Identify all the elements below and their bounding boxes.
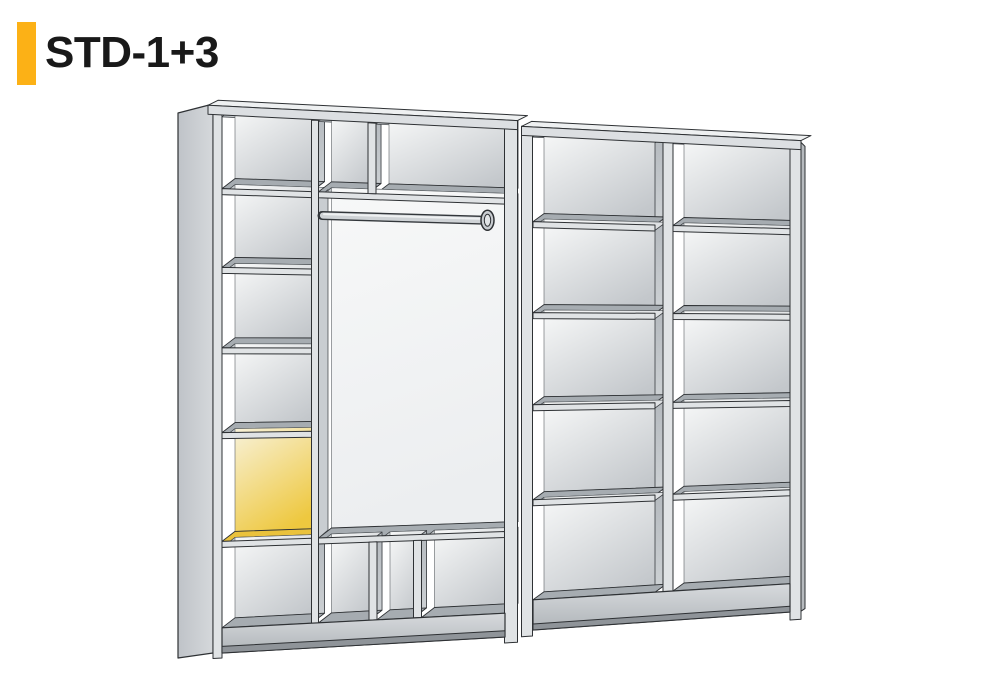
wardrobe-diagram <box>0 0 983 700</box>
page: { "header": { "title": "STD-1+3" }, "col… <box>0 0 983 700</box>
unit-2-open-shelving <box>522 121 812 636</box>
unit-1-wardrobe <box>178 100 528 658</box>
highlighted-compartment <box>222 427 325 541</box>
